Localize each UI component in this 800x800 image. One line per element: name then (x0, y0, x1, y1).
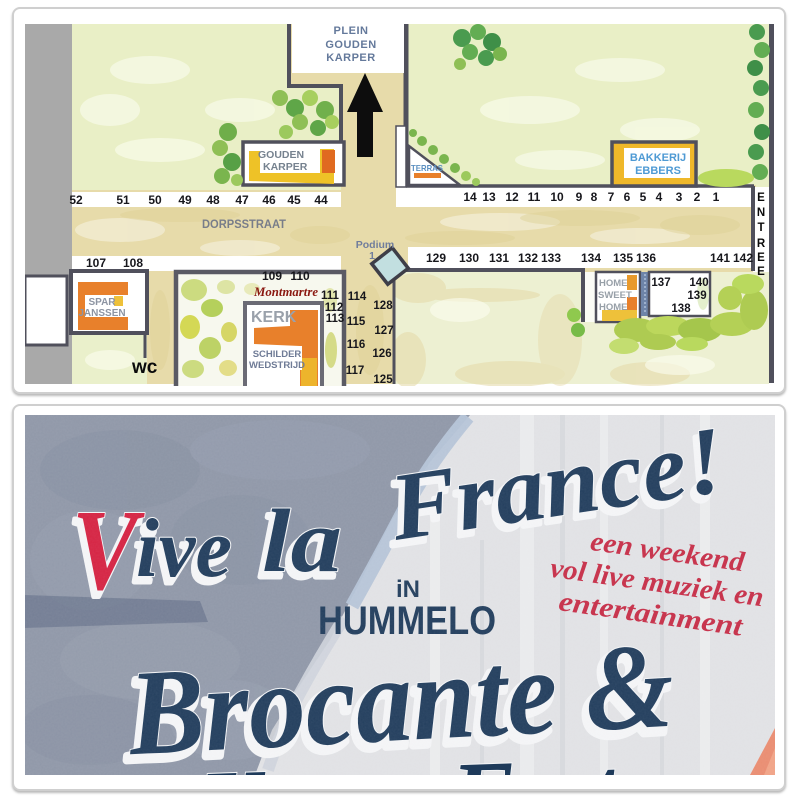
svg-text:111: 111 (321, 290, 340, 302)
svg-text:5: 5 (640, 190, 647, 204)
svg-text:46: 46 (262, 193, 276, 207)
svg-text:142: 142 (733, 251, 753, 265)
svg-text:109: 109 (262, 269, 282, 283)
svg-text:EBBERS: EBBERS (635, 165, 681, 177)
svg-text:51: 51 (116, 193, 130, 207)
svg-text:134: 134 (581, 251, 601, 265)
svg-text:140: 140 (689, 277, 708, 289)
svg-text:GOUDEN: GOUDEN (258, 149, 304, 161)
svg-text:44: 44 (314, 193, 328, 207)
svg-text:KERK: KERK (251, 309, 297, 326)
svg-text:141: 141 (710, 251, 730, 265)
svg-text:E: E (757, 192, 765, 204)
svg-text:52: 52 (69, 193, 83, 207)
svg-text:T: T (757, 222, 764, 234)
svg-text:3: 3 (676, 190, 683, 204)
svg-text:N: N (757, 207, 765, 219)
svg-text:Podium: Podium (356, 239, 395, 251)
svg-text:SPAR: SPAR (88, 297, 116, 308)
svg-text:117: 117 (346, 365, 365, 377)
svg-text:133: 133 (541, 251, 561, 265)
svg-text:113: 113 (326, 313, 345, 325)
svg-text:1: 1 (369, 250, 375, 262)
svg-text:GOUDEN: GOUDEN (325, 39, 376, 51)
svg-text:Montmartre: Montmartre (253, 284, 318, 299)
svg-text:107: 107 (86, 256, 106, 270)
svg-text:13: 13 (482, 190, 496, 204)
svg-text:HOME: HOME (599, 302, 628, 313)
svg-text:138: 138 (671, 303, 691, 315)
svg-text:136: 136 (636, 251, 656, 265)
svg-text:49: 49 (178, 193, 192, 207)
svg-text:DORPSSTRAAT: DORPSSTRAAT (202, 217, 287, 231)
svg-text:126: 126 (372, 348, 391, 360)
svg-text:BAKKERIJ: BAKKERIJ (630, 152, 686, 164)
svg-text:10: 10 (550, 190, 564, 204)
svg-text:6: 6 (624, 190, 631, 204)
svg-text:129: 129 (426, 251, 446, 265)
svg-text:108: 108 (123, 256, 143, 270)
svg-text:48: 48 (206, 193, 220, 207)
svg-text:130: 130 (459, 251, 479, 265)
svg-text:PLEIN: PLEIN (334, 25, 369, 37)
svg-text:HOME: HOME (599, 278, 628, 289)
svg-text:8: 8 (591, 190, 598, 204)
svg-text:110: 110 (290, 269, 310, 283)
svg-text:114: 114 (348, 291, 367, 303)
svg-text:12: 12 (505, 190, 519, 204)
svg-text:R: R (757, 238, 766, 250)
svg-text:wc: wc (131, 357, 158, 378)
svg-text:11: 11 (528, 190, 541, 204)
svg-text:7: 7 (608, 190, 615, 204)
svg-text:14: 14 (463, 190, 477, 204)
svg-text:1: 1 (713, 190, 720, 204)
svg-text:2: 2 (694, 190, 701, 204)
svg-text:SCHILDER: SCHILDER (253, 349, 302, 360)
svg-text:WEDSTRIJD: WEDSTRIJD (249, 360, 305, 371)
svg-text:KARPER: KARPER (263, 161, 308, 173)
svg-text:E: E (757, 252, 765, 264)
svg-text:KARPER: KARPER (326, 52, 375, 64)
svg-text:127: 127 (374, 325, 393, 337)
svg-text:E: E (757, 266, 765, 278)
svg-text:TERRAS: TERRAS (411, 163, 443, 173)
svg-text:SWEET: SWEET (598, 290, 632, 301)
svg-text:132: 132 (518, 251, 538, 265)
svg-text:128: 128 (373, 300, 393, 312)
svg-text:115: 115 (347, 316, 366, 328)
svg-text:125: 125 (373, 374, 393, 386)
svg-text:9: 9 (576, 190, 583, 204)
svg-text:45: 45 (287, 193, 301, 207)
svg-text:47: 47 (235, 193, 249, 207)
svg-text:50: 50 (148, 193, 162, 207)
svg-text:JANSSEN: JANSSEN (78, 308, 125, 319)
svg-text:135: 135 (613, 251, 633, 265)
svg-text:4: 4 (656, 190, 663, 204)
svg-text:139: 139 (687, 290, 706, 302)
svg-text:131: 131 (489, 251, 509, 265)
svg-text:116: 116 (347, 339, 366, 351)
svg-text:137: 137 (651, 277, 670, 289)
